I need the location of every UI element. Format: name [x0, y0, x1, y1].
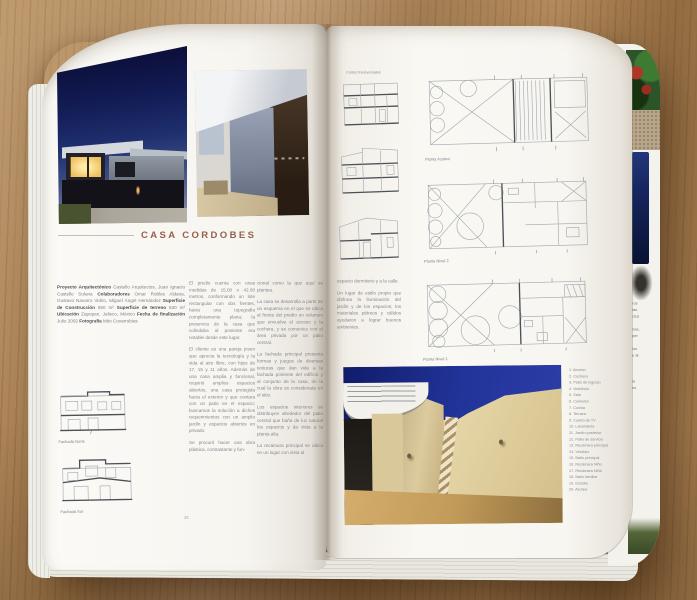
next-page-text-fragments: roslascicansa,perlose altees [632, 300, 658, 391]
lawn [57, 204, 91, 224]
floor-plan-level2: Planta Nivel 2 [422, 176, 594, 268]
plan-legend: 1. Acceso2. Cochera3. Patio de ingreso4.… [569, 367, 627, 499]
floor-plan-roof: Planta Azotea [423, 72, 595, 166]
dark-window [115, 162, 135, 177]
article-title-row: CASA CORDOBES [58, 230, 308, 241]
next-page-grass-photo [628, 518, 660, 554]
next-page-blue-photo [632, 152, 649, 264]
body-column-3: espacio dormitorio y a la calle.Un lugar… [337, 278, 401, 378]
right-page: Cortes transversales [326, 26, 632, 558]
drawing-caption: Fachada Norte [58, 439, 93, 444]
courtyard-photo [343, 365, 563, 525]
house-dusk-photo [57, 46, 187, 224]
desk-surface: roslascicansa,perlose altees [0, 0, 697, 600]
bench [203, 180, 228, 195]
plan-label: Planta Nivel 2 [424, 257, 509, 264]
page-number: 36 [184, 516, 189, 520]
body-column-1: El predio cuenta con unas medidas de 15.… [189, 280, 255, 548]
section-drawing-2 [338, 145, 402, 197]
section-drawing-3 [336, 213, 402, 263]
section-drawing-1 [340, 79, 402, 129]
facade-drawing-2: Fachada Sur [59, 451, 134, 518]
next-page-dark-photo [630, 266, 652, 300]
wall-lamp [499, 440, 503, 445]
left-page: CASA CORDOBES Proyecto Arquitectónico Ca… [42, 24, 326, 570]
facade-drawing-1: Fachada Norte [57, 385, 128, 448]
house-upper-volume [66, 153, 105, 181]
handrail-dots [274, 157, 304, 160]
sections-caption: Cortes transversales [346, 70, 381, 75]
porch-light [136, 186, 140, 195]
page-title: CASA CORDOBES [141, 230, 256, 241]
title-rule [58, 235, 134, 236]
plan-label: Planta Azotea [425, 155, 510, 162]
lit-window [70, 157, 101, 177]
credits-block: Proyecto Arquitectónico Castello Arquite… [57, 284, 185, 350]
spine-shadow [312, 24, 342, 560]
plan-label: Planta Nivel 1 [423, 355, 508, 362]
floor-plan-level1: Planta Nivel 1 [421, 276, 593, 366]
drawing-caption: Fachada Sur [60, 509, 97, 514]
canopy-railing [348, 385, 416, 403]
entry-photo [195, 69, 310, 217]
